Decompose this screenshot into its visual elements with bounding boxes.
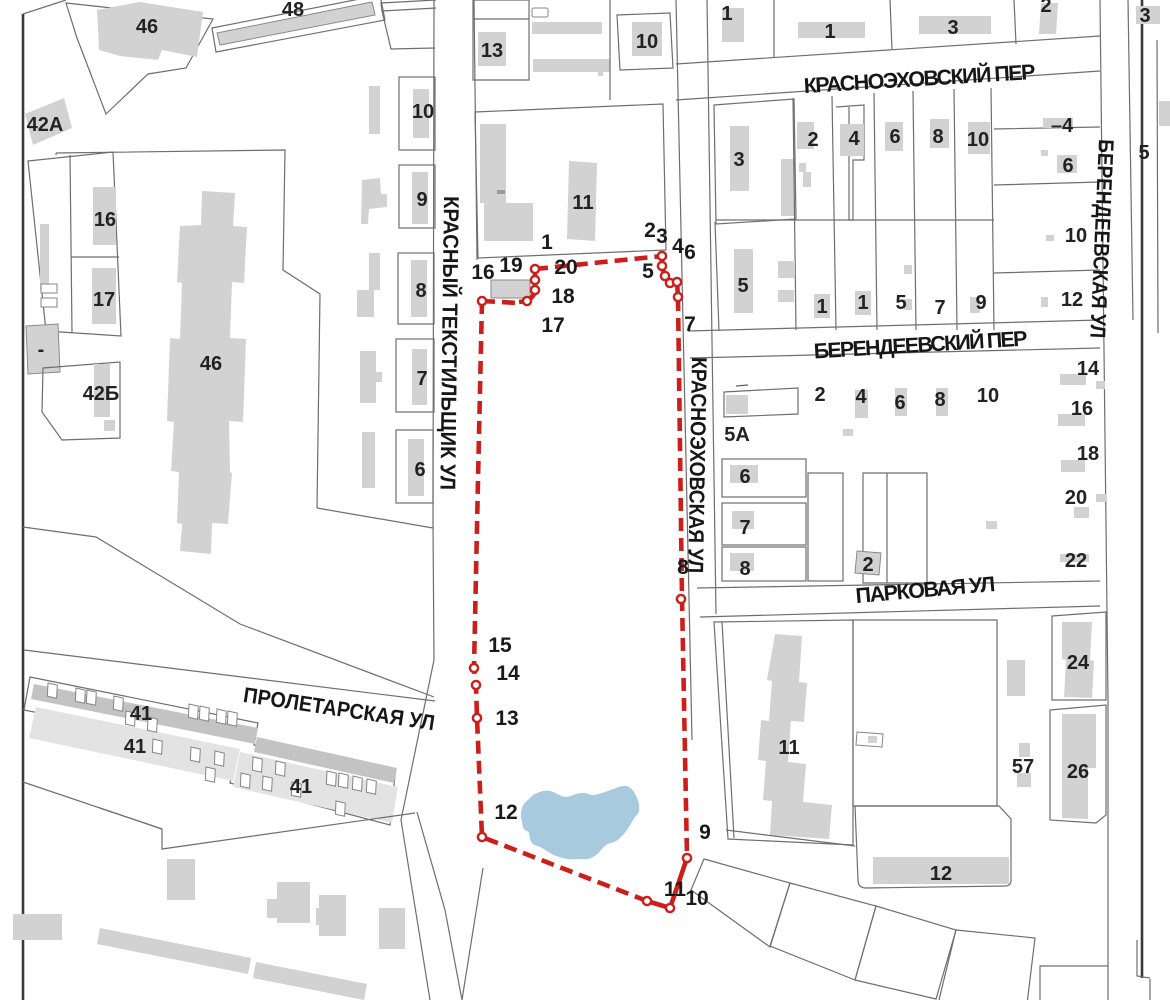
svg-text:5: 5 — [1138, 142, 1149, 164]
svg-text:5А: 5А — [724, 424, 750, 446]
svg-text:18: 18 — [551, 285, 575, 308]
svg-text:1: 1 — [816, 296, 827, 318]
svg-text:22: 22 — [1065, 550, 1087, 572]
svg-text:8: 8 — [932, 126, 943, 148]
svg-text:6: 6 — [894, 392, 905, 414]
svg-text:КРАСНЫЙ ТЕКСТИЛЬЩИК УЛ: КРАСНЫЙ ТЕКСТИЛЬЩИК УЛ — [435, 196, 464, 490]
svg-text:5: 5 — [895, 292, 906, 314]
svg-text:41: 41 — [124, 736, 146, 758]
svg-text:10: 10 — [1065, 225, 1087, 247]
svg-text:15: 15 — [488, 634, 512, 657]
svg-text:10: 10 — [636, 31, 658, 53]
svg-text:10: 10 — [412, 101, 434, 123]
svg-text:5: 5 — [642, 260, 654, 283]
svg-text:14: 14 — [496, 662, 520, 685]
svg-text:8: 8 — [415, 280, 426, 302]
svg-text:7: 7 — [934, 297, 945, 319]
svg-text:42А: 42А — [27, 114, 64, 136]
svg-text:19: 19 — [499, 254, 522, 277]
svg-text:16: 16 — [471, 261, 494, 284]
svg-text:41: 41 — [130, 703, 152, 725]
svg-text:7: 7 — [684, 313, 696, 336]
svg-text:17: 17 — [93, 289, 115, 311]
svg-text:2: 2 — [1040, 0, 1051, 17]
svg-text:1: 1 — [721, 3, 732, 25]
svg-text:24: 24 — [1067, 652, 1090, 674]
svg-text:6: 6 — [739, 466, 750, 488]
svg-text:КРАСНОЭХОВСКАЯ УЛ: КРАСНОЭХОВСКАЯ УЛ — [683, 357, 711, 573]
svg-text:5: 5 — [737, 275, 748, 297]
svg-text:26: 26 — [1067, 761, 1089, 783]
svg-text:13: 13 — [481, 40, 503, 62]
svg-text:2: 2 — [644, 219, 656, 242]
svg-text:6: 6 — [414, 459, 425, 481]
svg-text:10: 10 — [685, 887, 708, 910]
svg-text:10: 10 — [967, 129, 989, 151]
svg-text:10: 10 — [977, 385, 999, 407]
svg-text:3: 3 — [733, 149, 744, 171]
svg-text:3: 3 — [1139, 5, 1150, 27]
svg-text:20: 20 — [554, 256, 577, 279]
svg-text:12: 12 — [494, 801, 517, 824]
svg-text:1: 1 — [857, 292, 868, 314]
svg-text:-: - — [38, 339, 45, 361]
svg-text:6: 6 — [1062, 155, 1073, 177]
svg-text:9: 9 — [416, 189, 427, 211]
svg-text:2: 2 — [807, 129, 818, 151]
svg-text:–4: –4 — [1051, 115, 1074, 137]
svg-text:11: 11 — [572, 192, 593, 214]
svg-text:46: 46 — [200, 353, 222, 375]
svg-text:7: 7 — [739, 517, 750, 539]
svg-text:14: 14 — [1077, 358, 1100, 380]
svg-text:3: 3 — [656, 225, 668, 248]
svg-text:17: 17 — [541, 314, 564, 337]
svg-text:9: 9 — [975, 292, 986, 314]
svg-text:18: 18 — [1077, 443, 1099, 465]
svg-text:48: 48 — [282, 0, 304, 21]
svg-text:1: 1 — [824, 21, 835, 43]
svg-text:46: 46 — [136, 16, 158, 38]
svg-text:12: 12 — [1061, 289, 1083, 311]
svg-text:9: 9 — [699, 821, 711, 844]
svg-text:6: 6 — [889, 126, 900, 148]
svg-text:4: 4 — [848, 128, 860, 150]
svg-text:3: 3 — [947, 17, 958, 39]
svg-text:4: 4 — [855, 386, 867, 408]
svg-text:16: 16 — [94, 209, 116, 231]
svg-text:42Б: 42Б — [83, 383, 120, 405]
svg-text:6: 6 — [684, 241, 696, 264]
svg-text:11: 11 — [664, 878, 687, 901]
svg-text:7: 7 — [416, 368, 427, 390]
svg-text:12: 12 — [930, 863, 952, 885]
svg-text:8: 8 — [934, 389, 945, 411]
svg-text:57: 57 — [1012, 756, 1034, 778]
svg-text:11: 11 — [778, 737, 799, 759]
svg-text:20: 20 — [1065, 487, 1087, 509]
svg-text:2: 2 — [862, 554, 873, 576]
svg-text:16: 16 — [1071, 398, 1093, 420]
svg-text:8: 8 — [739, 558, 750, 580]
svg-text:4: 4 — [672, 235, 684, 258]
svg-text:41: 41 — [290, 776, 312, 798]
svg-text:1: 1 — [541, 231, 553, 254]
svg-text:13: 13 — [495, 707, 518, 730]
svg-text:2: 2 — [814, 384, 825, 406]
